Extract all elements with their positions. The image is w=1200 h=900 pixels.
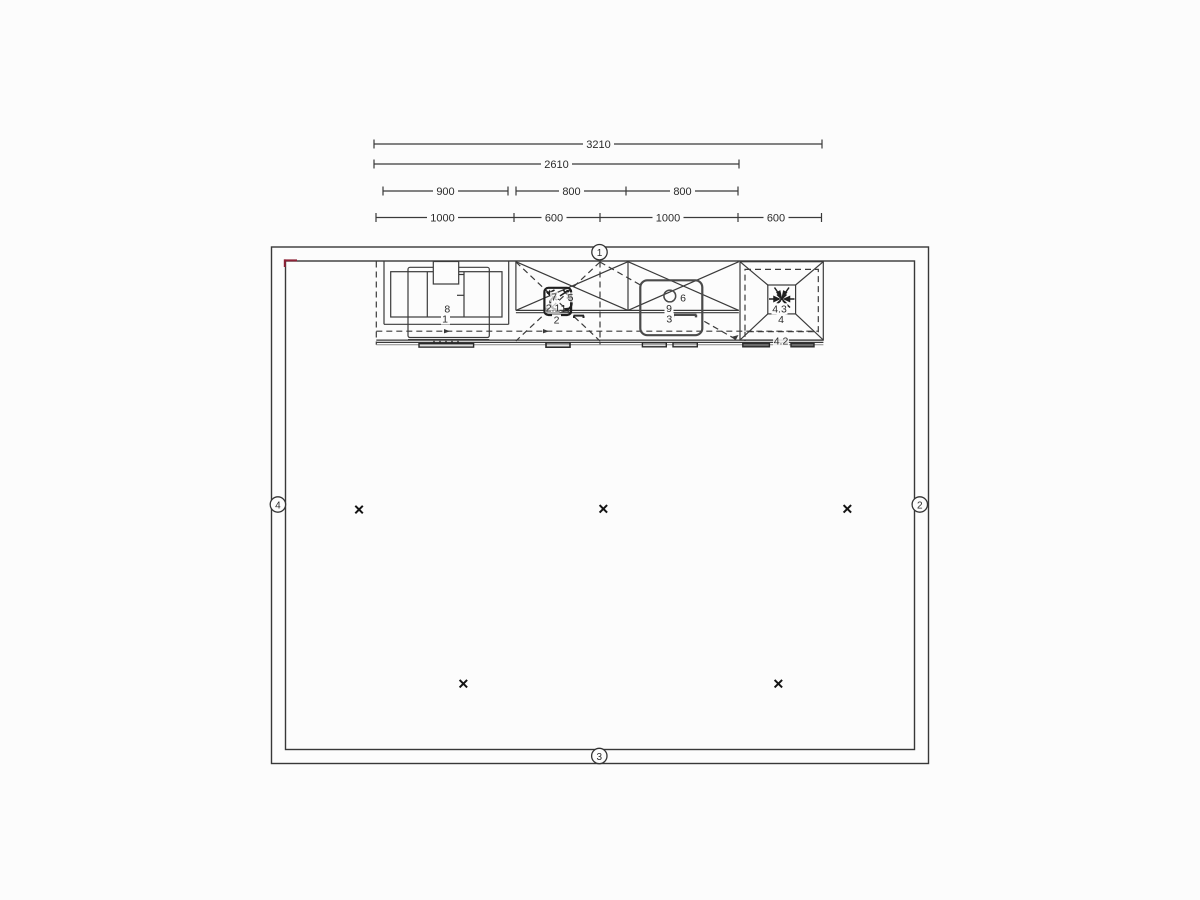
- svg-text:900: 900: [436, 186, 454, 198]
- svg-text:1: 1: [561, 303, 567, 315]
- svg-text:600: 600: [767, 213, 785, 225]
- svg-text:800: 800: [673, 186, 691, 198]
- svg-text:800: 800: [562, 186, 580, 198]
- svg-text:1000: 1000: [656, 213, 680, 225]
- svg-text:5: 5: [568, 292, 574, 304]
- svg-text:4: 4: [778, 314, 784, 326]
- svg-text:4.2: 4.2: [774, 336, 789, 348]
- svg-text:600: 600: [545, 213, 563, 225]
- svg-text:2: 2: [917, 500, 923, 511]
- svg-text:3: 3: [666, 314, 672, 326]
- svg-text:1000: 1000: [430, 213, 454, 225]
- svg-text:1: 1: [597, 248, 603, 259]
- svg-text:4: 4: [275, 500, 281, 511]
- svg-text:6: 6: [680, 292, 686, 304]
- svg-text:2610: 2610: [544, 159, 568, 171]
- svg-text:2.1: 2.1: [546, 303, 561, 315]
- svg-text:2: 2: [554, 314, 560, 326]
- svg-text:3: 3: [597, 752, 603, 763]
- svg-text:3210: 3210: [586, 139, 610, 151]
- svg-text:1: 1: [442, 314, 448, 326]
